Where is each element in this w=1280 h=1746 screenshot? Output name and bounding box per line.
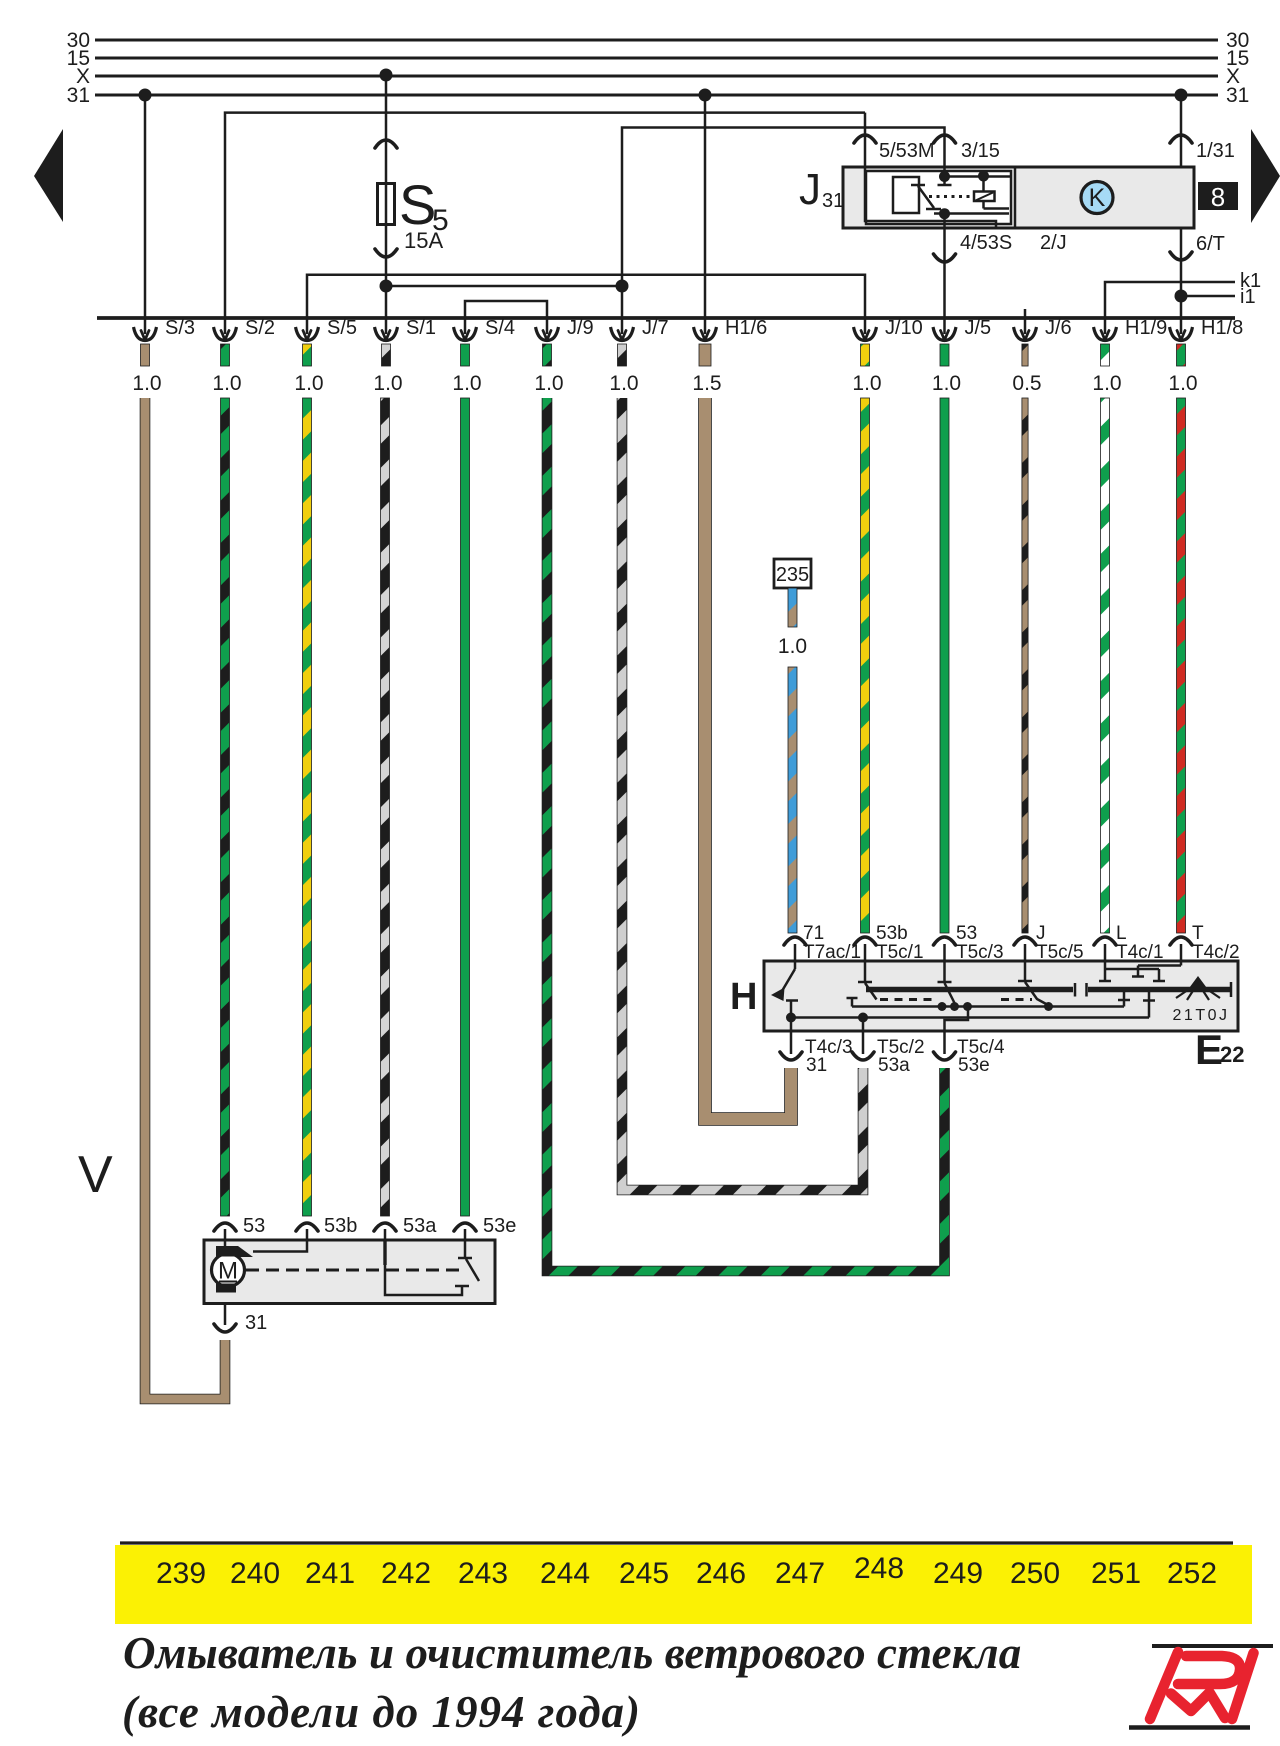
svg-text:T: T (1192, 923, 1204, 944)
svg-text:31: 31 (822, 190, 844, 212)
svg-text:Омыватель и очиститель ветрово: Омыватель и очиститель ветрового стекла (123, 1628, 1021, 1678)
svg-text:246: 246 (696, 1557, 746, 1590)
svg-text:53e: 53e (958, 1055, 990, 1076)
svg-text:M: M (218, 1258, 238, 1285)
svg-text:31: 31 (1226, 84, 1249, 107)
svg-text:H1/6: H1/6 (725, 317, 767, 339)
svg-text:1.0: 1.0 (609, 372, 638, 395)
svg-text:J: J (799, 165, 821, 214)
svg-text:1.0: 1.0 (932, 372, 961, 395)
svg-text:4/53S: 4/53S (960, 232, 1012, 254)
svg-text:J/9: J/9 (567, 317, 594, 339)
svg-text:1.0: 1.0 (373, 372, 402, 395)
svg-text:235: 235 (776, 564, 809, 586)
svg-text:K: K (1089, 184, 1106, 212)
svg-text:1.0: 1.0 (132, 372, 161, 395)
svg-text:53a: 53a (403, 1215, 437, 1237)
svg-text:T4c/2: T4c/2 (1192, 942, 1240, 963)
svg-text:6/T: 6/T (1196, 233, 1225, 255)
svg-text:239: 239 (156, 1557, 206, 1590)
svg-text:J: J (1036, 923, 1046, 944)
svg-text:1.0: 1.0 (1168, 372, 1197, 395)
svg-text:T4c/1: T4c/1 (1116, 942, 1164, 963)
svg-text:245: 245 (619, 1557, 669, 1590)
svg-text:31: 31 (245, 1312, 267, 1334)
svg-text:(все модели до 1994 года): (все модели до 1994 года) (122, 1687, 641, 1737)
svg-text:i1: i1 (1240, 286, 1256, 308)
svg-text:V: V (78, 1146, 113, 1204)
svg-text:22: 22 (1220, 1042, 1244, 1067)
svg-text:T5c/1: T5c/1 (876, 942, 924, 963)
svg-text:1.0: 1.0 (452, 372, 481, 395)
svg-text:T5c/5: T5c/5 (1036, 942, 1084, 963)
svg-text:1.5: 1.5 (692, 372, 721, 395)
svg-text:252: 252 (1167, 1557, 1217, 1590)
svg-text:H1/9: H1/9 (1125, 317, 1167, 339)
svg-text:5/53M: 5/53M (879, 140, 935, 162)
svg-text:0.5: 0.5 (1012, 372, 1041, 395)
svg-text:E: E (1195, 1026, 1223, 1073)
svg-text:21T0J: 21T0J (1173, 1007, 1230, 1024)
svg-text:L: L (1116, 923, 1127, 944)
svg-text:8: 8 (1211, 182, 1225, 212)
svg-text:241: 241 (305, 1557, 355, 1590)
svg-text:1.0: 1.0 (294, 372, 323, 395)
svg-text:1.0: 1.0 (212, 372, 241, 395)
svg-text:53b: 53b (324, 1215, 357, 1237)
svg-text:53: 53 (956, 923, 977, 944)
svg-text:53b: 53b (876, 923, 908, 944)
svg-text:247: 247 (775, 1557, 825, 1590)
svg-text:31: 31 (806, 1055, 827, 1076)
svg-text:1.0: 1.0 (778, 635, 807, 658)
svg-text:248: 248 (854, 1552, 904, 1585)
svg-text:T5c/3: T5c/3 (956, 942, 1004, 963)
svg-text:1.0: 1.0 (1092, 372, 1121, 395)
svg-text:J/6: J/6 (1045, 317, 1072, 339)
svg-text:15A: 15A (404, 228, 443, 253)
svg-text:2/J: 2/J (1040, 232, 1067, 254)
svg-text:S: S (399, 173, 436, 236)
svg-text:244: 244 (540, 1557, 590, 1590)
svg-text:250: 250 (1010, 1557, 1060, 1590)
svg-text:3/15: 3/15 (961, 140, 1000, 162)
svg-text:S/4: S/4 (485, 317, 515, 339)
svg-text:53a: 53a (878, 1055, 910, 1076)
svg-text:1.0: 1.0 (534, 372, 563, 395)
svg-text:1.0: 1.0 (852, 372, 881, 395)
svg-text:T7ac/1: T7ac/1 (803, 942, 861, 963)
svg-text:31: 31 (67, 84, 90, 107)
svg-text:S/1: S/1 (406, 317, 436, 339)
svg-text:240: 240 (230, 1557, 280, 1590)
svg-text:71: 71 (803, 923, 824, 944)
svg-text:1/31: 1/31 (1196, 140, 1235, 162)
svg-text:243: 243 (458, 1557, 508, 1590)
svg-text:S/5: S/5 (327, 317, 357, 339)
svg-text:249: 249 (933, 1557, 983, 1590)
svg-text:53: 53 (243, 1215, 265, 1237)
svg-text:251: 251 (1091, 1557, 1141, 1590)
svg-text:H: H (730, 976, 757, 1018)
svg-text:S/2: S/2 (245, 317, 275, 339)
svg-text:H1/8: H1/8 (1201, 317, 1243, 339)
svg-text:242: 242 (381, 1557, 431, 1590)
svg-text:J/10: J/10 (885, 317, 923, 339)
svg-text:J/7: J/7 (642, 317, 669, 339)
svg-text:J/5: J/5 (965, 317, 992, 339)
svg-text:S/3: S/3 (165, 317, 195, 339)
svg-text:53e: 53e (483, 1215, 516, 1237)
